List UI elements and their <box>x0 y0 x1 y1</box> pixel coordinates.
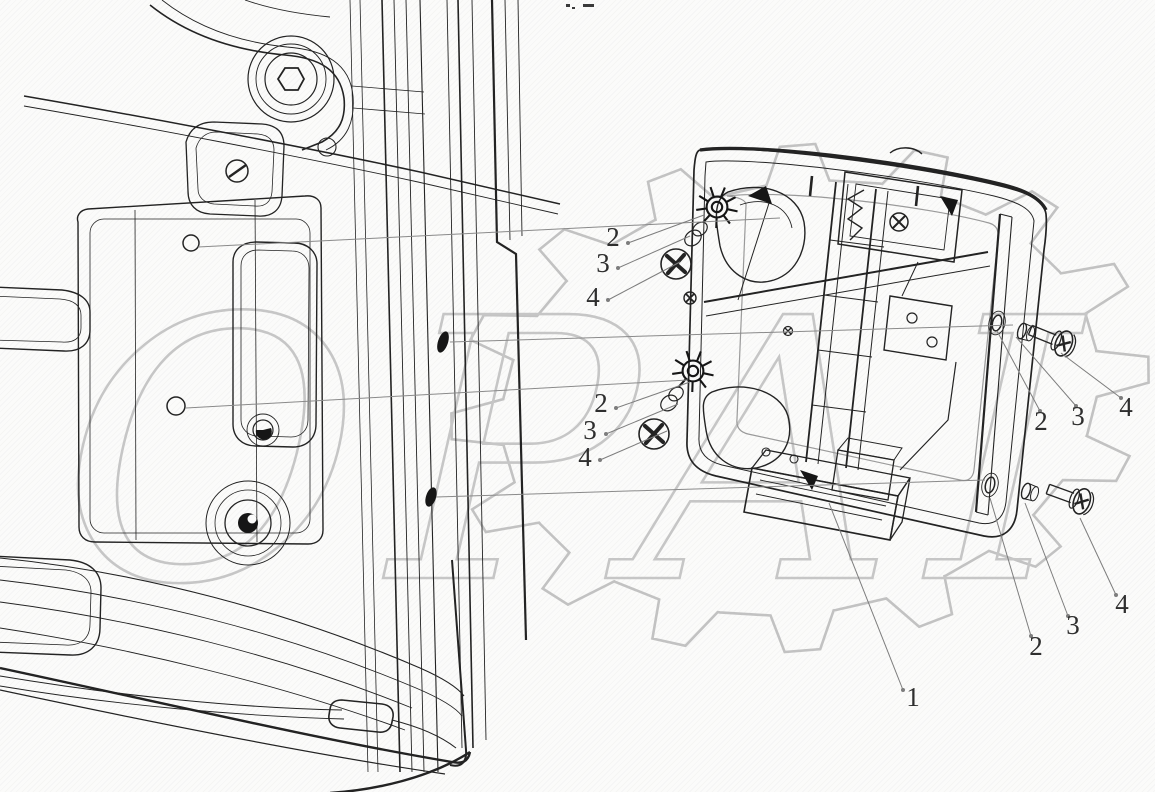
window-corner-stub <box>245 0 330 17</box>
callout-4-upper-left: 4 <box>586 282 600 312</box>
cable-clip-icon <box>329 700 393 732</box>
cable-and-clip <box>0 676 456 748</box>
window-corner-inner <box>162 0 353 150</box>
top-edge-marks <box>566 4 594 9</box>
callout-4-lower-right: 4 <box>1115 589 1129 619</box>
parts-diagram-page: OPAI <box>0 0 1155 792</box>
window-corner-outer <box>150 5 344 150</box>
callout-2-mid-left: 2 <box>594 388 608 418</box>
callout-4-upper-right: 4 <box>1119 392 1133 422</box>
callout-1-handle-assembly: 1 <box>906 682 920 712</box>
grommet-icon <box>248 36 334 122</box>
callout-3-upper-left: 3 <box>596 248 610 278</box>
callout-3-mid-left: 3 <box>583 415 597 445</box>
callout-2-lower-right: 2 <box>1029 631 1043 661</box>
callout-2-upper-right: 2 <box>1034 406 1048 436</box>
belt-line-outer <box>24 96 560 204</box>
callout-3-upper-right: 3 <box>1071 401 1085 431</box>
callout-3-lower-right: 3 <box>1066 610 1080 640</box>
bezel-top-edge <box>700 148 1046 210</box>
diagram-canvas: OPAI <box>0 0 1155 792</box>
callout-4-mid-left: 4 <box>578 442 592 472</box>
